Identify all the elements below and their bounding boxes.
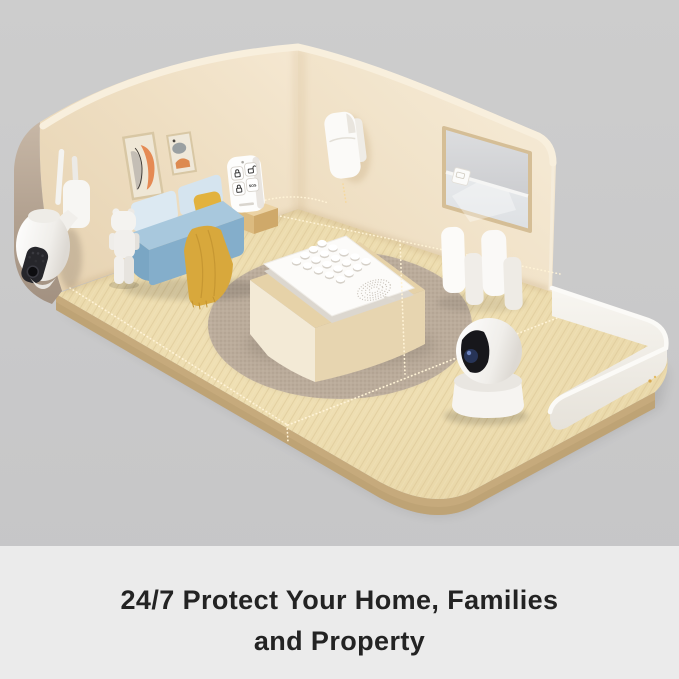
corner-shading xyxy=(292,48,306,212)
caption-line-2: and Property xyxy=(254,621,425,662)
arm-lock-button xyxy=(231,166,244,180)
camera-lens xyxy=(464,349,478,363)
product-image: SOS xyxy=(0,0,679,679)
diorama-svg: SOS xyxy=(0,0,679,546)
shade-sensor xyxy=(452,167,471,185)
disarm-unlock-button xyxy=(244,162,257,176)
sos-button: SOS xyxy=(246,178,259,192)
room-diorama: SOS xyxy=(0,0,679,546)
caption-band: 24/7 Protect Your Home, Families and Pro… xyxy=(0,546,679,679)
remote-keyfob: SOS xyxy=(226,154,266,213)
caption-line-1: 24/7 Protect Your Home, Families xyxy=(121,580,559,621)
home-arm-lock-button xyxy=(232,182,245,196)
wall-art-frame-small xyxy=(167,132,196,174)
sos-label: SOS xyxy=(249,183,258,188)
